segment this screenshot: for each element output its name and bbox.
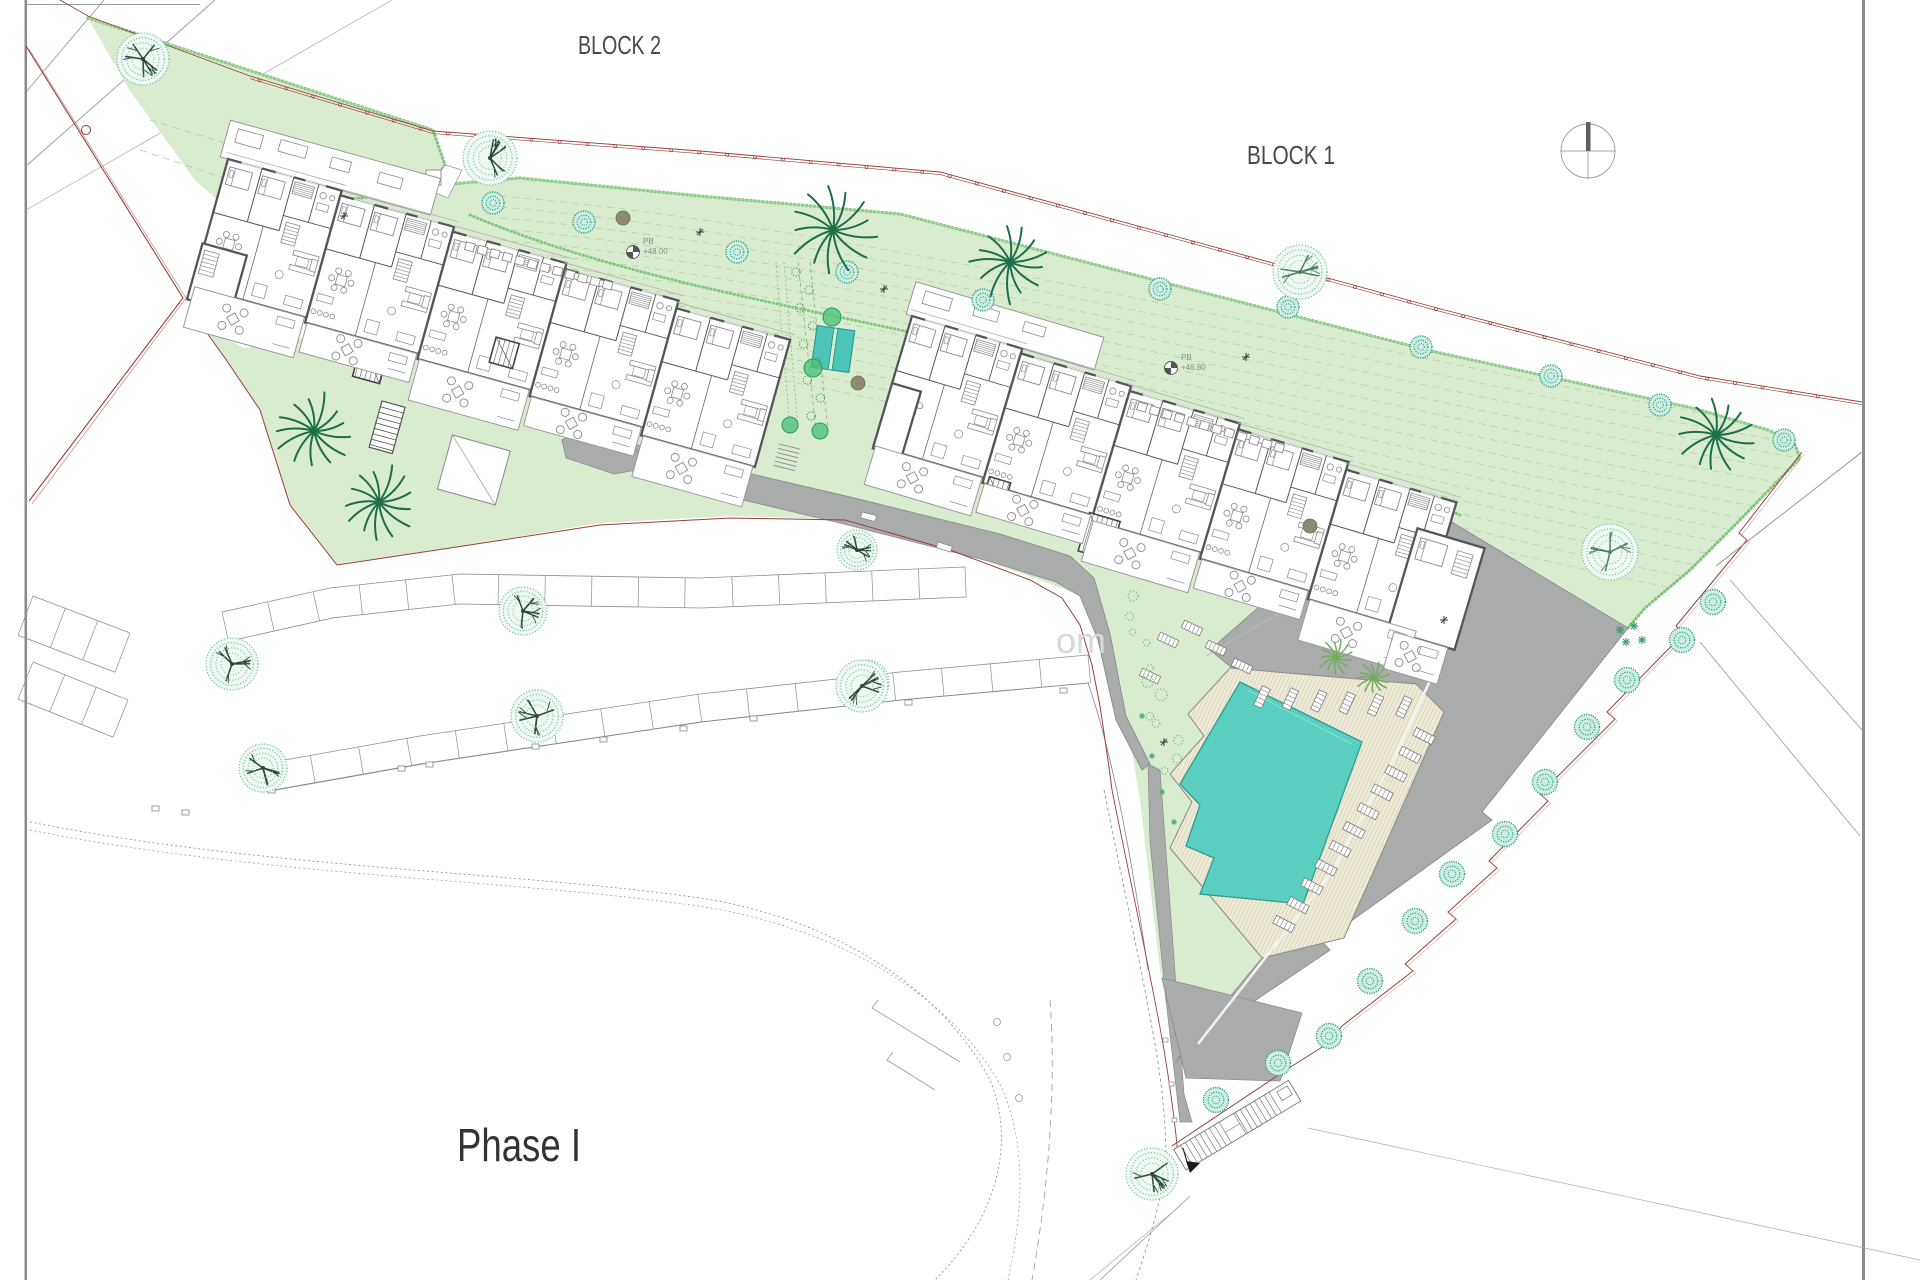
svg-text:om: om	[1056, 620, 1106, 661]
svg-text:PB: PB	[643, 237, 654, 246]
svg-text:BLOCK 2: BLOCK 2	[578, 30, 661, 60]
svg-text:PB: PB	[1181, 353, 1192, 362]
svg-text:+46.80: +46.80	[1181, 363, 1206, 372]
svg-text:Phase I: Phase I	[457, 1119, 581, 1171]
svg-text:BLOCK 1: BLOCK 1	[1247, 140, 1335, 170]
svg-text:+48.00: +48.00	[643, 247, 668, 256]
